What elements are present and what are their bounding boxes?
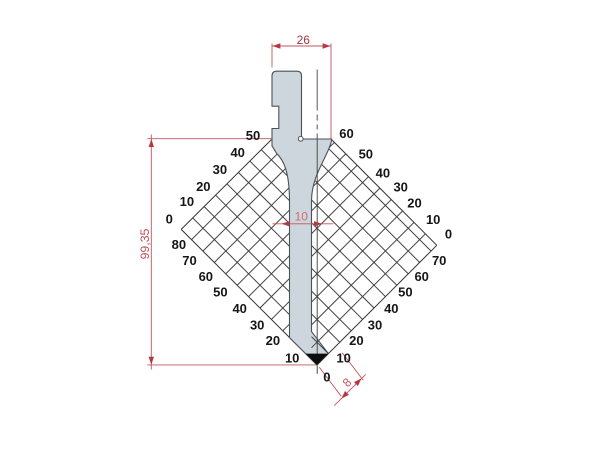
svg-text:20: 20 bbox=[349, 333, 363, 348]
svg-text:10: 10 bbox=[336, 351, 350, 366]
svg-text:60: 60 bbox=[414, 269, 428, 284]
svg-text:30: 30 bbox=[368, 317, 382, 332]
svg-text:0: 0 bbox=[445, 227, 452, 242]
svg-text:30: 30 bbox=[213, 162, 227, 177]
svg-text:10: 10 bbox=[285, 351, 299, 366]
svg-text:99,35: 99,35 bbox=[138, 228, 152, 259]
svg-text:70: 70 bbox=[182, 253, 196, 268]
svg-text:80: 80 bbox=[172, 237, 186, 252]
svg-text:20: 20 bbox=[196, 179, 210, 194]
svg-text:60: 60 bbox=[339, 126, 353, 141]
svg-text:50: 50 bbox=[213, 285, 227, 300]
svg-text:20: 20 bbox=[266, 333, 280, 348]
svg-text:10: 10 bbox=[426, 212, 440, 227]
svg-text:50: 50 bbox=[359, 147, 373, 162]
svg-text:0: 0 bbox=[323, 370, 330, 385]
svg-text:50: 50 bbox=[246, 128, 260, 143]
svg-text:26: 26 bbox=[297, 33, 311, 47]
svg-text:40: 40 bbox=[230, 145, 244, 160]
svg-text:20: 20 bbox=[407, 195, 421, 210]
svg-text:40: 40 bbox=[384, 301, 398, 316]
svg-text:50: 50 bbox=[398, 285, 412, 300]
svg-text:0: 0 bbox=[166, 211, 173, 226]
svg-text:30: 30 bbox=[393, 180, 407, 195]
svg-text:40: 40 bbox=[232, 301, 246, 316]
svg-text:10: 10 bbox=[295, 210, 309, 224]
svg-text:60: 60 bbox=[199, 269, 213, 284]
svg-text:10: 10 bbox=[180, 194, 194, 209]
svg-text:40: 40 bbox=[376, 165, 390, 180]
svg-text:30: 30 bbox=[250, 317, 264, 332]
svg-text:70: 70 bbox=[432, 253, 446, 268]
